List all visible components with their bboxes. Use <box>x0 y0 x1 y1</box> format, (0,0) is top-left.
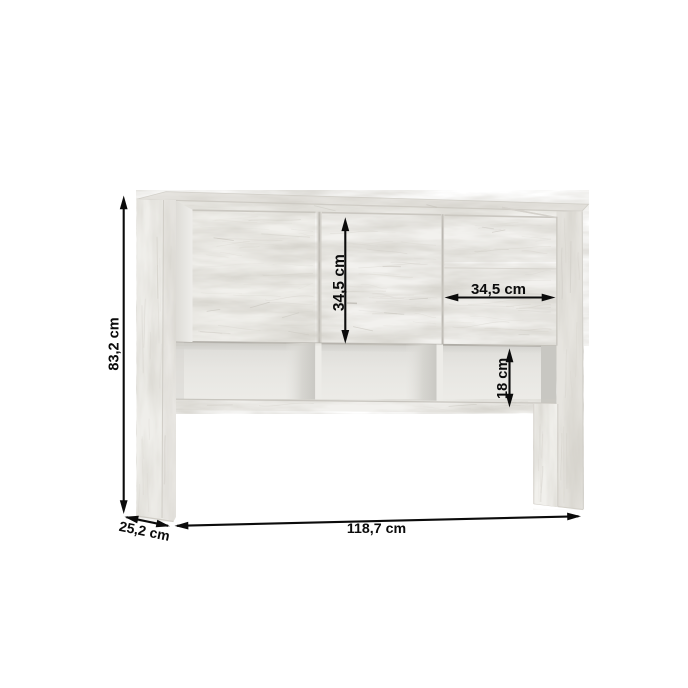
svg-text:18 cm: 18 cm <box>495 358 511 399</box>
svg-text:118,7 cm: 118,7 cm <box>347 521 406 537</box>
svg-text:34,5 cm: 34,5 cm <box>331 254 348 311</box>
svg-text:34,5 cm: 34,5 cm <box>471 281 526 298</box>
svg-text:83,2 cm: 83,2 cm <box>107 317 123 370</box>
